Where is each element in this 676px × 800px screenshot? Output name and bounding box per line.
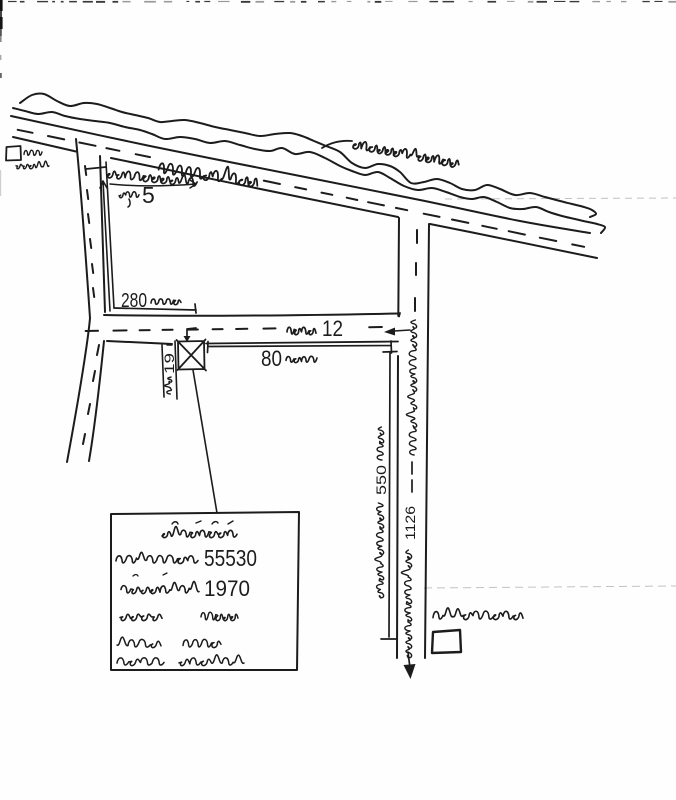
- svg-text:1970: 1970: [204, 576, 250, 601]
- svg-text:550: 550: [373, 465, 389, 495]
- svg-text:19: 19: [161, 353, 177, 374]
- svg-text:280: 280: [121, 290, 147, 312]
- svg-text:5: 5: [142, 182, 155, 208]
- svg-text:12: 12: [322, 316, 343, 341]
- svg-text:55530: 55530: [204, 545, 257, 571]
- svg-text:80: 80: [261, 346, 282, 371]
- svg-text:1126: 1126: [402, 506, 418, 540]
